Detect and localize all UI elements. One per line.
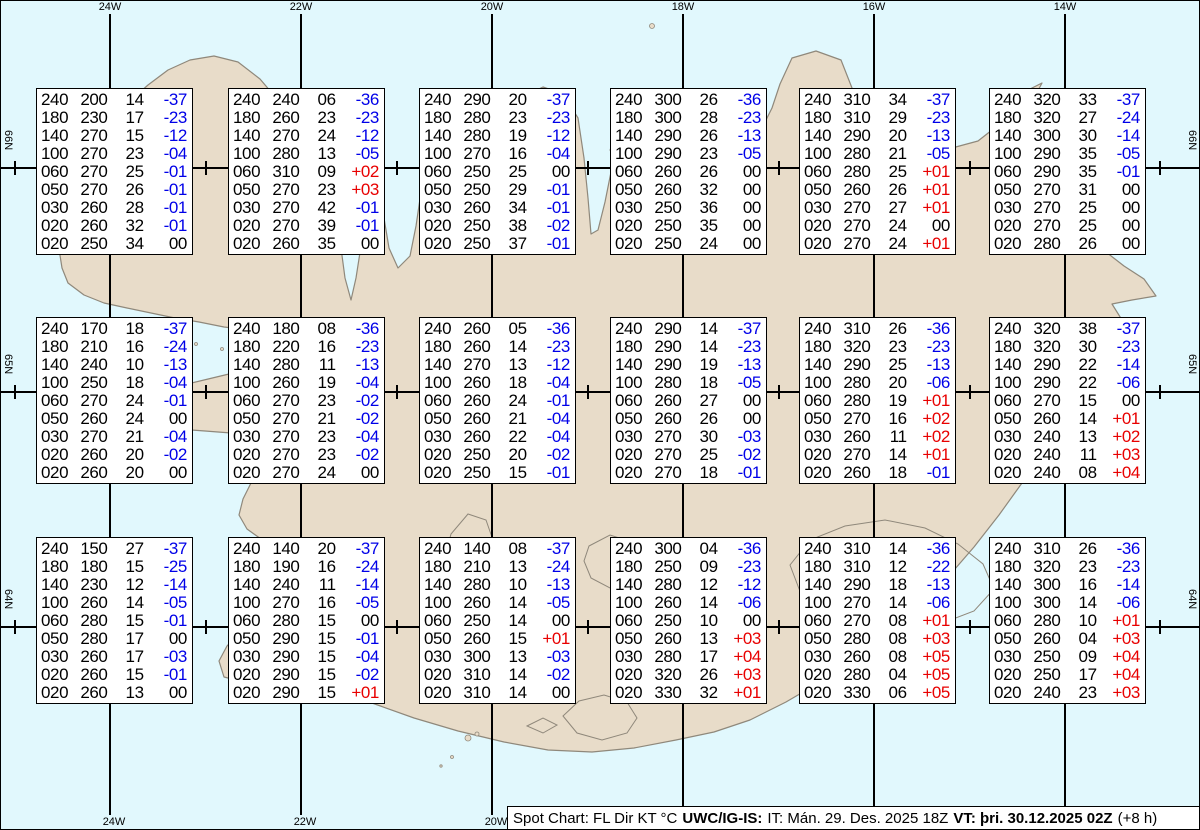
wind-speed-kt: 39 [312, 217, 336, 235]
temperature-c: -02 [726, 446, 761, 464]
temperature-c: 00 [726, 612, 761, 630]
flight-level: 020 [994, 684, 1025, 702]
spot-level-row: 24031014-36 [804, 540, 950, 558]
status-bar: Spot Chart: FL Dir KT °CUWC/IG-IS:IT: Má… [507, 806, 1200, 830]
temperature-c: -23 [915, 109, 950, 127]
wind-direction: 280 [1033, 612, 1064, 630]
spot-level-row: 18022016-23 [233, 338, 379, 356]
graticule-tick [1159, 620, 1161, 634]
wind-direction: 270 [843, 446, 874, 464]
wind-direction: 260 [463, 392, 494, 410]
wind-direction: 250 [463, 612, 494, 630]
flight-level: 060 [615, 163, 646, 181]
wind-direction: 290 [843, 576, 874, 594]
wind-direction: 270 [463, 356, 494, 374]
wind-direction: 270 [272, 594, 303, 612]
wind-direction: 300 [463, 648, 494, 666]
wind-speed-kt: 23 [883, 338, 907, 356]
flight-level: 050 [994, 410, 1025, 428]
wind-speed-kt: 27 [883, 199, 907, 217]
temperature-c: 00 [726, 235, 761, 253]
wind-speed-kt: 15 [312, 666, 336, 684]
wind-speed-kt: 14 [883, 594, 907, 612]
graticule-tick [1159, 161, 1161, 175]
wind-speed-kt: 23 [694, 145, 718, 163]
temperature-c: -04 [535, 374, 570, 392]
temperature-c: -05 [535, 594, 570, 612]
wind-direction: 280 [1033, 235, 1064, 253]
temperature-c: -03 [726, 428, 761, 446]
wind-direction: 240 [1033, 464, 1064, 482]
temperature-c: +02 [344, 163, 379, 181]
spot-level-row: 14030016-14 [994, 576, 1140, 594]
spot-level-row: 03024013+02 [994, 428, 1140, 446]
wind-speed-kt: 14 [120, 594, 144, 612]
wind-speed-kt: 35 [312, 235, 336, 253]
meridian-label-bottom-22W: 22W [290, 816, 320, 828]
wind-direction: 280 [843, 163, 874, 181]
flight-level: 100 [233, 594, 264, 612]
spot-level-row: 18032030-23 [994, 338, 1140, 356]
wind-direction: 270 [1033, 181, 1064, 199]
wind-speed-kt: 38 [503, 217, 527, 235]
spot-level-row: 14029026-13 [615, 127, 761, 145]
wind-direction: 270 [80, 428, 111, 446]
wind-direction: 260 [463, 374, 494, 392]
flight-level: 060 [804, 612, 835, 630]
flight-level: 050 [424, 410, 455, 428]
wind-speed-kt: 15 [312, 648, 336, 666]
spot-level-row: 24029020-37 [424, 91, 570, 109]
temperature-c: +04 [726, 648, 761, 666]
flight-level: 180 [424, 558, 455, 576]
wind-direction: 280 [272, 145, 303, 163]
wind-speed-kt: 16 [312, 594, 336, 612]
temperature-c: -01 [344, 199, 379, 217]
flight-level: 060 [41, 163, 72, 181]
flight-level: 020 [41, 464, 72, 482]
status-legend: Spot Chart: FL Dir KT °C [513, 810, 677, 827]
parallel-label-right-64N: 64N [1187, 589, 1197, 609]
spot-level-row: 06027008+01 [804, 612, 950, 630]
temperature-c: -13 [726, 127, 761, 145]
spot-level-row: 14029022-14 [994, 356, 1140, 374]
spot-level-row: 18031029-23 [804, 109, 950, 127]
wind-direction: 310 [272, 163, 303, 181]
wind-direction: 290 [654, 145, 685, 163]
temperature-c: -12 [344, 127, 379, 145]
wind-speed-kt: 20 [503, 91, 527, 109]
temperature-c: +01 [1105, 410, 1140, 428]
wind-direction: 260 [80, 217, 111, 235]
wind-direction: 270 [843, 594, 874, 612]
flight-level: 140 [233, 127, 264, 145]
temperature-c: -01 [535, 199, 570, 217]
temperature-c: -01 [726, 464, 761, 482]
wind-direction: 260 [654, 630, 685, 648]
graticule-tick [205, 161, 207, 175]
wind-direction: 270 [843, 612, 874, 630]
status-issue-time: IT: Mán. 29. Des. 2025 18Z [767, 810, 948, 827]
wind-direction: 260 [463, 428, 494, 446]
temperature-c: -13 [535, 576, 570, 594]
wind-direction: 280 [843, 666, 874, 684]
wind-speed-kt: 11 [1073, 446, 1097, 464]
wind-speed-kt: 24 [883, 235, 907, 253]
flight-level: 020 [233, 464, 264, 482]
spot-level-row: 02024011+03 [994, 446, 1140, 464]
temperature-c: +05 [915, 666, 950, 684]
flight-level: 020 [41, 235, 72, 253]
wind-direction: 270 [272, 392, 303, 410]
wind-direction: 280 [843, 145, 874, 163]
temperature-c: -23 [1105, 338, 1140, 356]
wind-speed-kt: 26 [694, 163, 718, 181]
wind-speed-kt: 35 [1073, 163, 1097, 181]
temperature-c: -12 [535, 127, 570, 145]
flight-level: 060 [233, 612, 264, 630]
wind-speed-kt: 14 [503, 594, 527, 612]
wind-speed-kt: 25 [120, 163, 144, 181]
wind-direction: 270 [272, 181, 303, 199]
flight-level: 030 [424, 428, 455, 446]
flight-level: 060 [615, 392, 646, 410]
wind-speed-kt: 26 [694, 91, 718, 109]
flight-level: 020 [994, 666, 1025, 684]
temperature-c: -01 [152, 392, 187, 410]
wind-direction: 270 [272, 428, 303, 446]
temperature-c: -36 [535, 320, 570, 338]
spot-level-row: 18021013-24 [424, 558, 570, 576]
temperature-c: 00 [915, 217, 950, 235]
wind-speed-kt: 26 [1073, 235, 1097, 253]
wind-direction: 270 [654, 428, 685, 446]
flight-level: 060 [233, 163, 264, 181]
wind-speed-kt: 20 [120, 464, 144, 482]
wind-direction: 260 [463, 338, 494, 356]
wind-direction: 250 [654, 199, 685, 217]
wind-direction: 260 [80, 199, 111, 217]
temperature-c: -02 [535, 446, 570, 464]
flight-level: 180 [41, 338, 72, 356]
flight-level: 050 [615, 410, 646, 428]
wind-direction: 280 [843, 392, 874, 410]
spot-level-row: 24018008-36 [233, 320, 379, 338]
temperature-c: -01 [344, 217, 379, 235]
wind-direction: 320 [843, 338, 874, 356]
spot-level-row: 02027023-02 [233, 446, 379, 464]
spot-level-row: 18019016-24 [233, 558, 379, 576]
flight-level: 050 [804, 630, 835, 648]
flight-level: 020 [994, 217, 1025, 235]
temperature-c: -01 [152, 666, 187, 684]
flight-level: 180 [233, 558, 264, 576]
temperature-c: -13 [726, 356, 761, 374]
temperature-c: 00 [726, 217, 761, 235]
wind-direction: 310 [843, 91, 874, 109]
graticule-tick [778, 385, 780, 399]
wind-speed-kt: 19 [694, 356, 718, 374]
wind-speed-kt: 19 [883, 392, 907, 410]
temperature-c: -24 [1105, 109, 1140, 127]
temperature-c: +03 [726, 630, 761, 648]
spot-level-row: 10030014-06 [994, 594, 1140, 612]
spot-box-r2-c2: 24018008-3618022016-2314028011-131002601… [228, 317, 385, 484]
spot-level-row: 02028004+05 [804, 666, 950, 684]
wind-speed-kt: 23 [312, 428, 336, 446]
wind-speed-kt: 09 [1073, 648, 1097, 666]
temperature-c: -36 [915, 540, 950, 558]
spot-level-row: 0202802600 [994, 235, 1140, 253]
graticule-tick [396, 385, 398, 399]
wind-direction: 290 [1033, 145, 1064, 163]
flight-level: 030 [804, 199, 835, 217]
spot-level-row: 02029015-02 [233, 666, 379, 684]
wind-speed-kt: 25 [883, 356, 907, 374]
parallel-label-right-66N: 66N [1187, 130, 1197, 150]
spot-level-row: 0202603500 [233, 235, 379, 253]
wind-direction: 290 [654, 338, 685, 356]
wind-direction: 270 [80, 181, 111, 199]
wind-direction: 260 [654, 163, 685, 181]
temperature-c: -37 [344, 540, 379, 558]
spot-level-row: 10027016-05 [233, 594, 379, 612]
flight-level: 020 [233, 446, 264, 464]
flight-level: 050 [994, 181, 1025, 199]
wind-direction: 260 [463, 410, 494, 428]
flight-level: 240 [615, 540, 646, 558]
temperature-c: +01 [915, 163, 950, 181]
temperature-c: -23 [726, 109, 761, 127]
wind-speed-kt: 10 [694, 612, 718, 630]
spot-box-r2-c6: 24032038-3718032030-2314029022-141002902… [989, 317, 1146, 484]
meridian-label-top-18W: 18W [668, 1, 698, 13]
wind-speed-kt: 18 [120, 374, 144, 392]
wind-speed-kt: 34 [503, 199, 527, 217]
flight-level: 140 [615, 356, 646, 374]
spot-level-row: 02024008+04 [994, 464, 1140, 482]
wind-direction: 270 [843, 199, 874, 217]
temperature-c: -36 [726, 91, 761, 109]
temperature-c: -02 [535, 217, 570, 235]
wind-speed-kt: 09 [694, 558, 718, 576]
wind-direction: 260 [80, 446, 111, 464]
wind-direction: 270 [80, 163, 111, 181]
temperature-c: +01 [915, 235, 950, 253]
temperature-c: +04 [1105, 666, 1140, 684]
wind-speed-kt: 08 [312, 320, 336, 338]
temperature-c: -37 [152, 540, 187, 558]
spot-level-row: 0602801500 [233, 612, 379, 630]
temperature-c: -13 [915, 127, 950, 145]
wind-speed-kt: 13 [312, 145, 336, 163]
wind-speed-kt: 11 [312, 576, 336, 594]
spot-box-r2-c5: 24031026-3618032023-2314029025-131002802… [799, 317, 956, 484]
wind-direction: 210 [463, 558, 494, 576]
spot-level-row: 10026019-04 [233, 374, 379, 392]
wind-direction: 300 [1033, 576, 1064, 594]
flight-level: 140 [424, 356, 455, 374]
graticule-tick [969, 385, 971, 399]
temperature-c: -36 [726, 540, 761, 558]
wind-speed-kt: 24 [120, 410, 144, 428]
spot-level-row: 18018015-25 [41, 558, 187, 576]
wind-direction: 260 [80, 684, 111, 702]
wind-speed-kt: 25 [1073, 217, 1097, 235]
wind-direction: 270 [843, 410, 874, 428]
meridian-label-top-22W: 22W [286, 1, 316, 13]
wind-speed-kt: 24 [694, 235, 718, 253]
wind-speed-kt: 15 [503, 464, 527, 482]
flight-level: 020 [804, 464, 835, 482]
temperature-c: +03 [915, 630, 950, 648]
temperature-c: 00 [152, 410, 187, 428]
flight-level: 020 [994, 235, 1025, 253]
flight-level: 020 [424, 666, 455, 684]
wind-speed-kt: 17 [120, 630, 144, 648]
wind-direction: 270 [272, 217, 303, 235]
flight-level: 020 [994, 464, 1025, 482]
wind-direction: 280 [843, 374, 874, 392]
wind-speed-kt: 32 [120, 217, 144, 235]
meridian-label-top-24W: 24W [95, 1, 125, 13]
spot-level-row: 02025015-01 [424, 464, 570, 482]
wind-speed-kt: 16 [1073, 576, 1097, 594]
graticule-tick [587, 620, 589, 634]
spot-box-r3-c2: 24014020-3718019016-2414024011-141002701… [228, 537, 385, 704]
spot-level-row: 03026011+02 [804, 428, 950, 446]
wind-speed-kt: 14 [694, 594, 718, 612]
wind-direction: 280 [80, 612, 111, 630]
spot-level-row: 0202702400 [804, 217, 950, 235]
temperature-c: +03 [1105, 446, 1140, 464]
wind-speed-kt: 08 [883, 612, 907, 630]
spot-level-row: 05026026+01 [804, 181, 950, 199]
temperature-c: +04 [1105, 648, 1140, 666]
wind-direction: 260 [1033, 630, 1064, 648]
wind-speed-kt: 15 [312, 684, 336, 702]
wind-direction: 270 [80, 392, 111, 410]
flight-level: 060 [233, 392, 264, 410]
graticule-tick [778, 161, 780, 175]
flight-level: 030 [615, 199, 646, 217]
wind-speed-kt: 42 [312, 199, 336, 217]
spot-level-row: 18023017-23 [41, 109, 187, 127]
temperature-c: -05 [726, 374, 761, 392]
flight-level: 140 [804, 356, 835, 374]
spot-level-row: 0202702400 [233, 464, 379, 482]
spot-level-row: 02024023+03 [994, 684, 1140, 702]
spot-level-row: 14029019-13 [615, 356, 761, 374]
flight-level: 030 [41, 428, 72, 446]
wind-direction: 140 [463, 540, 494, 558]
flight-level: 240 [994, 320, 1025, 338]
wind-speed-kt: 24 [883, 217, 907, 235]
temperature-c: -06 [915, 594, 950, 612]
wind-direction: 320 [1033, 338, 1064, 356]
wind-direction: 320 [1033, 91, 1064, 109]
flight-level: 240 [41, 540, 72, 558]
flight-level: 240 [804, 540, 835, 558]
flight-level: 100 [994, 145, 1025, 163]
wind-speed-kt: 06 [312, 91, 336, 109]
spot-level-row: 02025037-01 [424, 235, 570, 253]
island [440, 765, 442, 767]
spot-level-row: 06026024-01 [424, 392, 570, 410]
spot-level-row: 10026014-05 [41, 594, 187, 612]
wind-direction: 260 [463, 199, 494, 217]
temperature-c: -05 [915, 145, 950, 163]
spot-level-row: 24031034-37 [804, 91, 950, 109]
temperature-c: -14 [152, 576, 187, 594]
flight-level: 240 [233, 91, 264, 109]
wind-speed-kt: 26 [883, 181, 907, 199]
flight-level: 180 [994, 109, 1025, 127]
spot-level-row: 14029020-13 [804, 127, 950, 145]
flight-level: 050 [41, 181, 72, 199]
spot-box-r1-c2: 24024006-3618026023-2314027024-121002801… [228, 88, 385, 255]
wind-direction: 250 [654, 558, 685, 576]
parallel-label-left-64N: 64N [3, 589, 13, 609]
meridian-label-top-16W: 16W [859, 1, 889, 13]
flight-level: 020 [233, 684, 264, 702]
flight-level: 060 [994, 163, 1025, 181]
wind-speed-kt: 19 [312, 374, 336, 392]
temperature-c: -01 [152, 217, 187, 235]
temperature-c: -01 [535, 392, 570, 410]
wind-direction: 240 [272, 91, 303, 109]
temperature-c: +02 [915, 428, 950, 446]
temperature-c: +03 [726, 666, 761, 684]
wind-direction: 250 [463, 464, 494, 482]
temperature-c: -13 [344, 356, 379, 374]
temperature-c: -23 [535, 109, 570, 127]
temperature-c: -06 [1105, 374, 1140, 392]
wind-direction: 250 [463, 235, 494, 253]
wind-direction: 220 [272, 338, 303, 356]
spot-box-r2-c1: 24017018-3718021016-2414024010-131002501… [36, 317, 193, 484]
wind-speed-kt: 25 [883, 163, 907, 181]
temperature-c: -14 [1105, 356, 1140, 374]
island [650, 24, 655, 29]
graticule-tick [778, 620, 780, 634]
wind-speed-kt: 36 [694, 199, 718, 217]
flight-level: 100 [994, 594, 1025, 612]
temperature-c: 00 [726, 163, 761, 181]
wind-direction: 270 [654, 464, 685, 482]
spot-box-r1-c4: 24030026-3618030028-2314029026-131002902… [610, 88, 767, 255]
spot-level-row: 02031014-02 [424, 666, 570, 684]
temperature-c: -05 [344, 145, 379, 163]
flight-level: 140 [804, 576, 835, 594]
spot-level-row: 0202702500 [994, 217, 1140, 235]
spot-level-row: 10028018-05 [615, 374, 761, 392]
wind-speed-kt: 15 [312, 630, 336, 648]
spot-level-row: 14024010-13 [41, 356, 187, 374]
spot-level-row: 0602502500 [424, 163, 570, 181]
spot-level-row: 14029018-13 [804, 576, 950, 594]
temperature-c: +03 [1105, 630, 1140, 648]
spot-box-r3-c5: 24031014-3618031012-2214029018-131002701… [799, 537, 956, 704]
flight-level: 140 [615, 576, 646, 594]
flight-level: 020 [615, 666, 646, 684]
wind-speed-kt: 23 [120, 145, 144, 163]
graticule-tick [205, 620, 207, 634]
wind-speed-kt: 30 [1073, 338, 1097, 356]
wind-speed-kt: 23 [312, 181, 336, 199]
wind-direction: 180 [80, 558, 111, 576]
flight-level: 140 [994, 127, 1025, 145]
